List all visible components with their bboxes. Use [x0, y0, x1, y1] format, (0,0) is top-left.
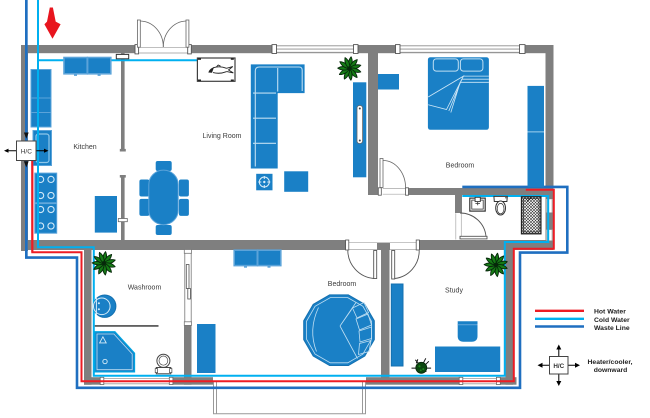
svg-text:H/C: H/C: [553, 363, 564, 370]
svg-text:Kitchen: Kitchen: [73, 144, 96, 151]
svg-text:Study: Study: [445, 288, 463, 295]
svg-text:Cold Water: Cold Water: [594, 317, 630, 324]
svg-text:Heater/cooler,: Heater/cooler,: [588, 359, 633, 366]
svg-text:Washroom: Washroom: [128, 285, 162, 292]
svg-text:Hot Water: Hot Water: [594, 309, 626, 316]
svg-text:Waste Line: Waste Line: [594, 325, 630, 332]
svg-text:Bedroom: Bedroom: [446, 163, 475, 170]
svg-text:H/C: H/C: [21, 149, 33, 156]
svg-text:downward: downward: [594, 367, 628, 374]
svg-text:Living Room: Living Room: [203, 133, 242, 140]
svg-text:Bedroom: Bedroom: [328, 281, 357, 288]
